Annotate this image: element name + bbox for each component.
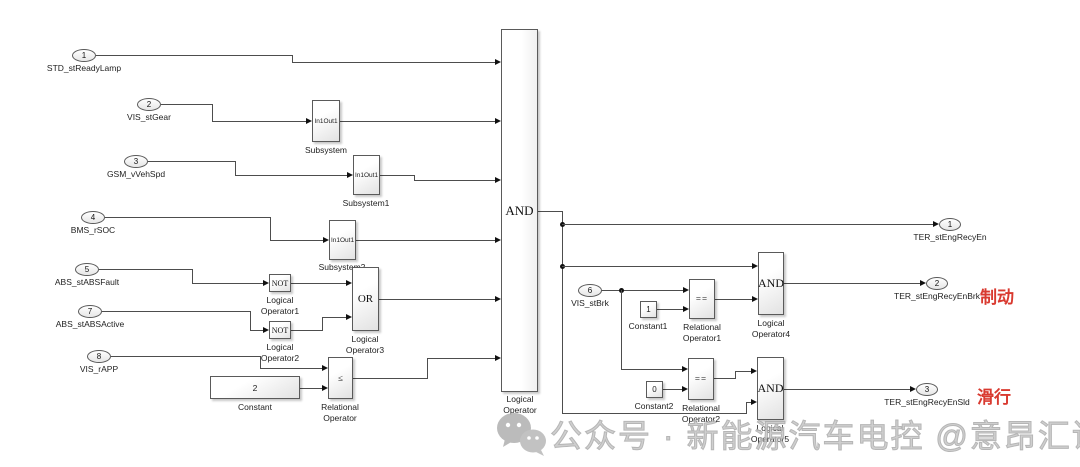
wire: [270, 240, 323, 241]
wire: [562, 266, 752, 267]
operator-text: AND: [505, 203, 533, 219]
wire: [353, 378, 427, 379]
wire: [235, 175, 347, 176]
port-number: 3: [134, 157, 138, 166]
output-port-3-label: TER_stEngRecyEnSld: [857, 397, 997, 407]
wire: [102, 311, 250, 312]
wire: [192, 269, 193, 284]
annotation-slide: 滑行: [977, 383, 1011, 408]
input-port-8-label: VIS_rAPP: [29, 364, 169, 374]
subsystem1-label: Subsystem1: [326, 198, 406, 209]
constant-label: Constant: [215, 402, 295, 413]
not-operator2-block[interactable]: NOT: [269, 321, 291, 339]
input-port-6[interactable]: 6: [578, 284, 602, 297]
wire: [322, 317, 346, 318]
wire: [291, 283, 346, 284]
wire: [292, 62, 495, 63]
wire: [250, 330, 263, 331]
wire: [96, 55, 292, 56]
port-number: 2: [147, 100, 151, 109]
port-number: 6: [588, 286, 592, 295]
constant-value: 0: [652, 385, 656, 394]
input-port-8[interactable]: 8: [87, 350, 111, 363]
or-operator3-block[interactable]: OR: [352, 267, 379, 331]
port-number: 2: [935, 279, 939, 288]
input-port-3[interactable]: 3: [124, 155, 148, 168]
watermark-text: 公众号 · 新能源汽车电控 @意昂汇课: [550, 411, 1080, 457]
wire: [414, 180, 495, 181]
wire: [621, 369, 682, 370]
port-number: 8: [97, 352, 101, 361]
wire: [784, 283, 920, 284]
port-number: 1: [82, 51, 86, 60]
wire: [356, 240, 495, 241]
constant1-block[interactable]: 1: [640, 301, 657, 318]
annotation-brake: 制动: [980, 283, 1014, 308]
wire: [715, 299, 752, 300]
inport-label: In1: [355, 172, 364, 179]
not-operator1-block[interactable]: NOT: [269, 274, 291, 292]
input-port-5-label: ABS_stABSFault: [17, 277, 157, 287]
outport-label: Out1: [323, 118, 337, 125]
operator-text: NOT: [272, 326, 288, 335]
wire: [380, 175, 414, 176]
input-port-4[interactable]: 4: [81, 211, 105, 224]
relational-operator1-block[interactable]: ==: [689, 279, 715, 319]
wire: [562, 211, 563, 414]
wire: [111, 356, 260, 357]
input-port-2[interactable]: 2: [137, 98, 161, 111]
constant-value: 2: [253, 383, 258, 393]
operator-text: OR: [358, 293, 373, 305]
subsystem2-block[interactable]: In1Out1: [329, 220, 356, 260]
subsystem-label: Subsystem: [286, 145, 366, 156]
wire: [735, 371, 736, 379]
operator-text: NOT: [272, 279, 288, 288]
wire: [657, 309, 683, 310]
constant-block[interactable]: 2: [210, 376, 300, 399]
wire: [340, 121, 495, 122]
constant2-block[interactable]: 0: [646, 381, 663, 398]
relational-operator-label: Relational Operator: [300, 402, 380, 423]
wire: [735, 371, 751, 372]
and-operator4-block[interactable]: AND: [758, 252, 784, 315]
wire: [192, 283, 263, 284]
port-number: 5: [85, 265, 89, 274]
input-port-1-label: STD_stReadyLamp: [14, 63, 154, 73]
subsystem-block[interactable]: In1Out1: [312, 100, 340, 142]
input-port-5[interactable]: 5: [75, 263, 99, 276]
input-port-7-label: ABS_stABSActive: [20, 319, 160, 329]
output-port-1-label: TER_stEngRecyEn: [880, 232, 1020, 242]
or-operator3-label: Logical Operator3: [325, 334, 405, 355]
wire: [379, 299, 495, 300]
wire: [300, 388, 322, 389]
wire: [235, 161, 236, 175]
wire: [427, 358, 495, 359]
input-port-4-label: BMS_rSOC: [23, 225, 163, 235]
input-port-3-label: GSM_vVehSpd: [66, 169, 206, 179]
wire: [161, 104, 212, 105]
main-and-operator-block[interactable]: AND: [501, 29, 538, 392]
operator-text: ==: [695, 374, 707, 384]
simulink-diagram-canvas: 1 STD_stReadyLamp 2 VIS_stGear 3 GSM_vVe…: [0, 0, 1080, 467]
output-port-1[interactable]: 1: [939, 218, 961, 231]
wire: [99, 269, 192, 270]
wire: [291, 330, 322, 331]
input-port-2-label: VIS_stGear: [79, 112, 219, 122]
input-port-6-label: VIS_stBrk: [520, 298, 660, 308]
input-port-1[interactable]: 1: [72, 49, 96, 62]
operator-text: AND: [758, 276, 784, 291]
output-port-2[interactable]: 2: [926, 277, 948, 290]
constant-value: 1: [646, 305, 650, 314]
subsystem1-block[interactable]: In1Out1: [353, 155, 380, 195]
port-number: 3: [925, 385, 929, 394]
outport-label: Out1: [340, 237, 354, 244]
wire: [562, 224, 933, 225]
and-operator4-label: Logical Operator4: [731, 318, 811, 339]
wire: [784, 389, 910, 390]
relational-operator2-block[interactable]: ==: [688, 358, 714, 400]
wire: [322, 317, 323, 331]
port-number: 7: [88, 307, 92, 316]
output-port-3[interactable]: 3: [916, 383, 938, 396]
wire: [601, 290, 683, 291]
inport-label: In1: [331, 237, 340, 244]
port-number: 4: [91, 213, 95, 222]
wire: [105, 217, 270, 218]
operator-text: ==: [696, 294, 708, 304]
wire: [663, 389, 682, 390]
input-port-7[interactable]: 7: [78, 305, 102, 318]
wire: [427, 358, 428, 379]
wire: [270, 217, 271, 241]
wire: [538, 211, 563, 212]
relational-operator1-label: Relational Operator1: [662, 322, 742, 343]
wire: [212, 121, 306, 122]
wire: [148, 161, 235, 162]
relational-operator-block[interactable]: ≤: [328, 357, 353, 399]
port-number: 1: [948, 220, 952, 229]
inport-label: In1: [314, 118, 323, 125]
wechat-icon: [495, 411, 549, 462]
outport-label: Out1: [364, 172, 378, 179]
wire: [714, 378, 735, 379]
not-operator2-label: Logical Operator2: [240, 342, 320, 363]
operator-text: AND: [758, 381, 784, 396]
wire: [260, 368, 322, 369]
not-operator1-label: Logical Operator1: [240, 295, 320, 316]
operator-text: ≤: [338, 373, 343, 383]
